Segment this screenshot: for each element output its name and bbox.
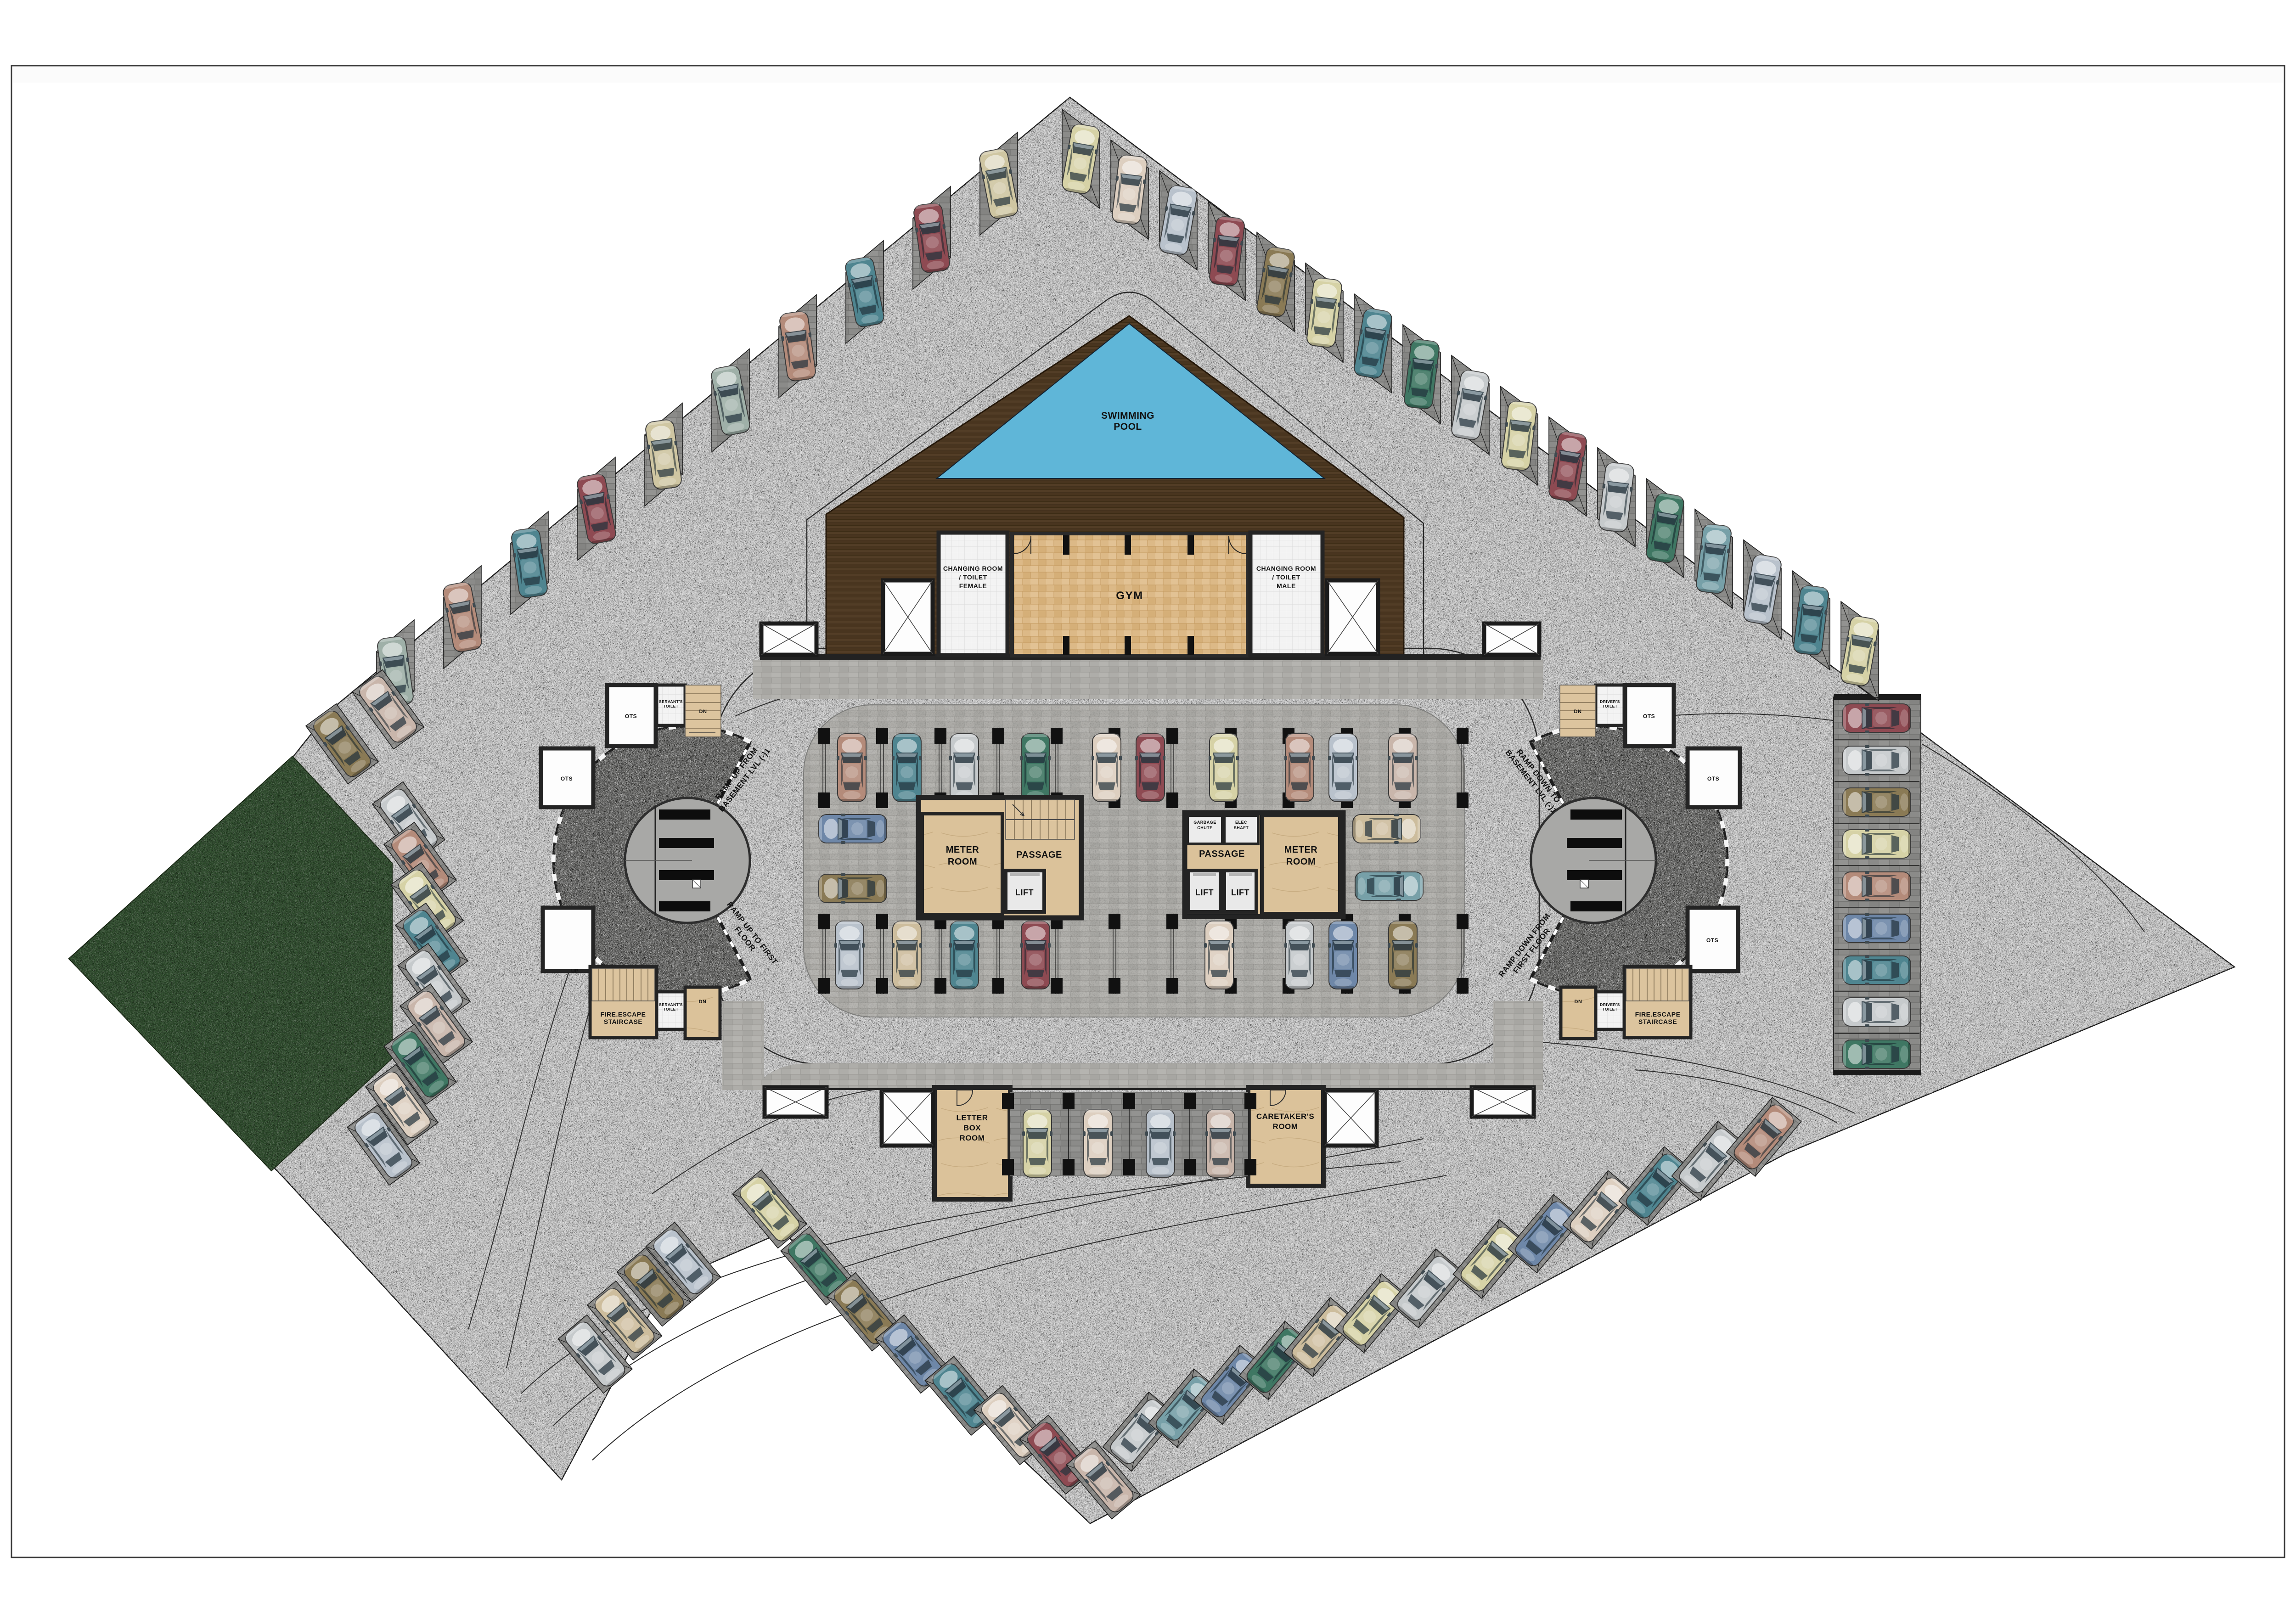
svg-text:LIFT: LIFT: [1015, 888, 1034, 897]
svg-text:GYM: GYM: [1116, 590, 1143, 602]
svg-text:TOILET: TOILET: [1602, 704, 1617, 708]
svg-text:GARBAGE: GARBAGE: [1193, 820, 1216, 825]
svg-text:SERVANT'S: SERVANT'S: [659, 699, 683, 704]
svg-text:SERVANT'S: SERVANT'S: [659, 1002, 683, 1007]
svg-text:LIFT: LIFT: [1231, 888, 1249, 897]
svg-text:METER: METER: [1284, 845, 1318, 855]
svg-text:SWIMMING: SWIMMING: [1101, 410, 1154, 421]
svg-text:OTS: OTS: [1706, 937, 1718, 944]
svg-text:DN: DN: [699, 999, 707, 1005]
svg-text:ROOM: ROOM: [1273, 1122, 1298, 1131]
svg-text:CHUTE: CHUTE: [1197, 826, 1213, 830]
svg-text:CARETAKER'S: CARETAKER'S: [1256, 1112, 1314, 1121]
svg-text:POOL: POOL: [1114, 421, 1142, 432]
svg-text:BOX: BOX: [963, 1124, 981, 1132]
svg-text:DRIVER'S: DRIVER'S: [1600, 699, 1620, 704]
svg-text:ROOM: ROOM: [1286, 857, 1316, 867]
svg-text:LIFT: LIFT: [1195, 888, 1214, 897]
svg-text:ELEC: ELEC: [1235, 820, 1247, 825]
svg-text:DN: DN: [1575, 999, 1582, 1005]
svg-text:ROOM: ROOM: [960, 1134, 985, 1142]
svg-text:PASSAGE: PASSAGE: [1016, 850, 1062, 860]
svg-text:OTS: OTS: [625, 713, 637, 719]
svg-text:CHANGING ROOM: CHANGING ROOM: [1256, 565, 1316, 572]
svg-text:DRIVER'S: DRIVER'S: [1600, 1002, 1620, 1007]
svg-text:SHAFT: SHAFT: [1234, 826, 1249, 830]
svg-text:STAIRCASE: STAIRCASE: [604, 1018, 642, 1025]
svg-text:LETTER: LETTER: [956, 1113, 988, 1122]
svg-text:OTS: OTS: [1707, 775, 1719, 782]
svg-text:TOILET: TOILET: [663, 704, 678, 708]
svg-text:CHANGING ROOM: CHANGING ROOM: [943, 565, 1003, 572]
svg-text:FIRE.ESCAPE: FIRE.ESCAPE: [601, 1011, 646, 1018]
svg-text:TOILET: TOILET: [663, 1007, 678, 1011]
svg-text:OTS: OTS: [561, 775, 573, 782]
svg-text:FEMALE: FEMALE: [959, 582, 987, 590]
svg-text:STAIRCASE: STAIRCASE: [1638, 1018, 1677, 1025]
svg-text:ROOM: ROOM: [948, 857, 977, 867]
svg-text:MALE: MALE: [1277, 582, 1296, 590]
svg-text:DN: DN: [699, 709, 707, 714]
svg-text:DN: DN: [1574, 709, 1582, 714]
svg-text:/ TOILET: / TOILET: [959, 573, 987, 581]
svg-text:OTS: OTS: [1643, 713, 1655, 719]
svg-text:UP: UP: [571, 968, 579, 974]
svg-text:METER: METER: [946, 845, 979, 855]
svg-text:/ TOILET: / TOILET: [1272, 573, 1300, 581]
svg-text:PASSAGE: PASSAGE: [1199, 849, 1245, 859]
svg-text:FIRE.ESCAPE: FIRE.ESCAPE: [1635, 1011, 1681, 1018]
svg-text:TOILET: TOILET: [1602, 1007, 1617, 1011]
